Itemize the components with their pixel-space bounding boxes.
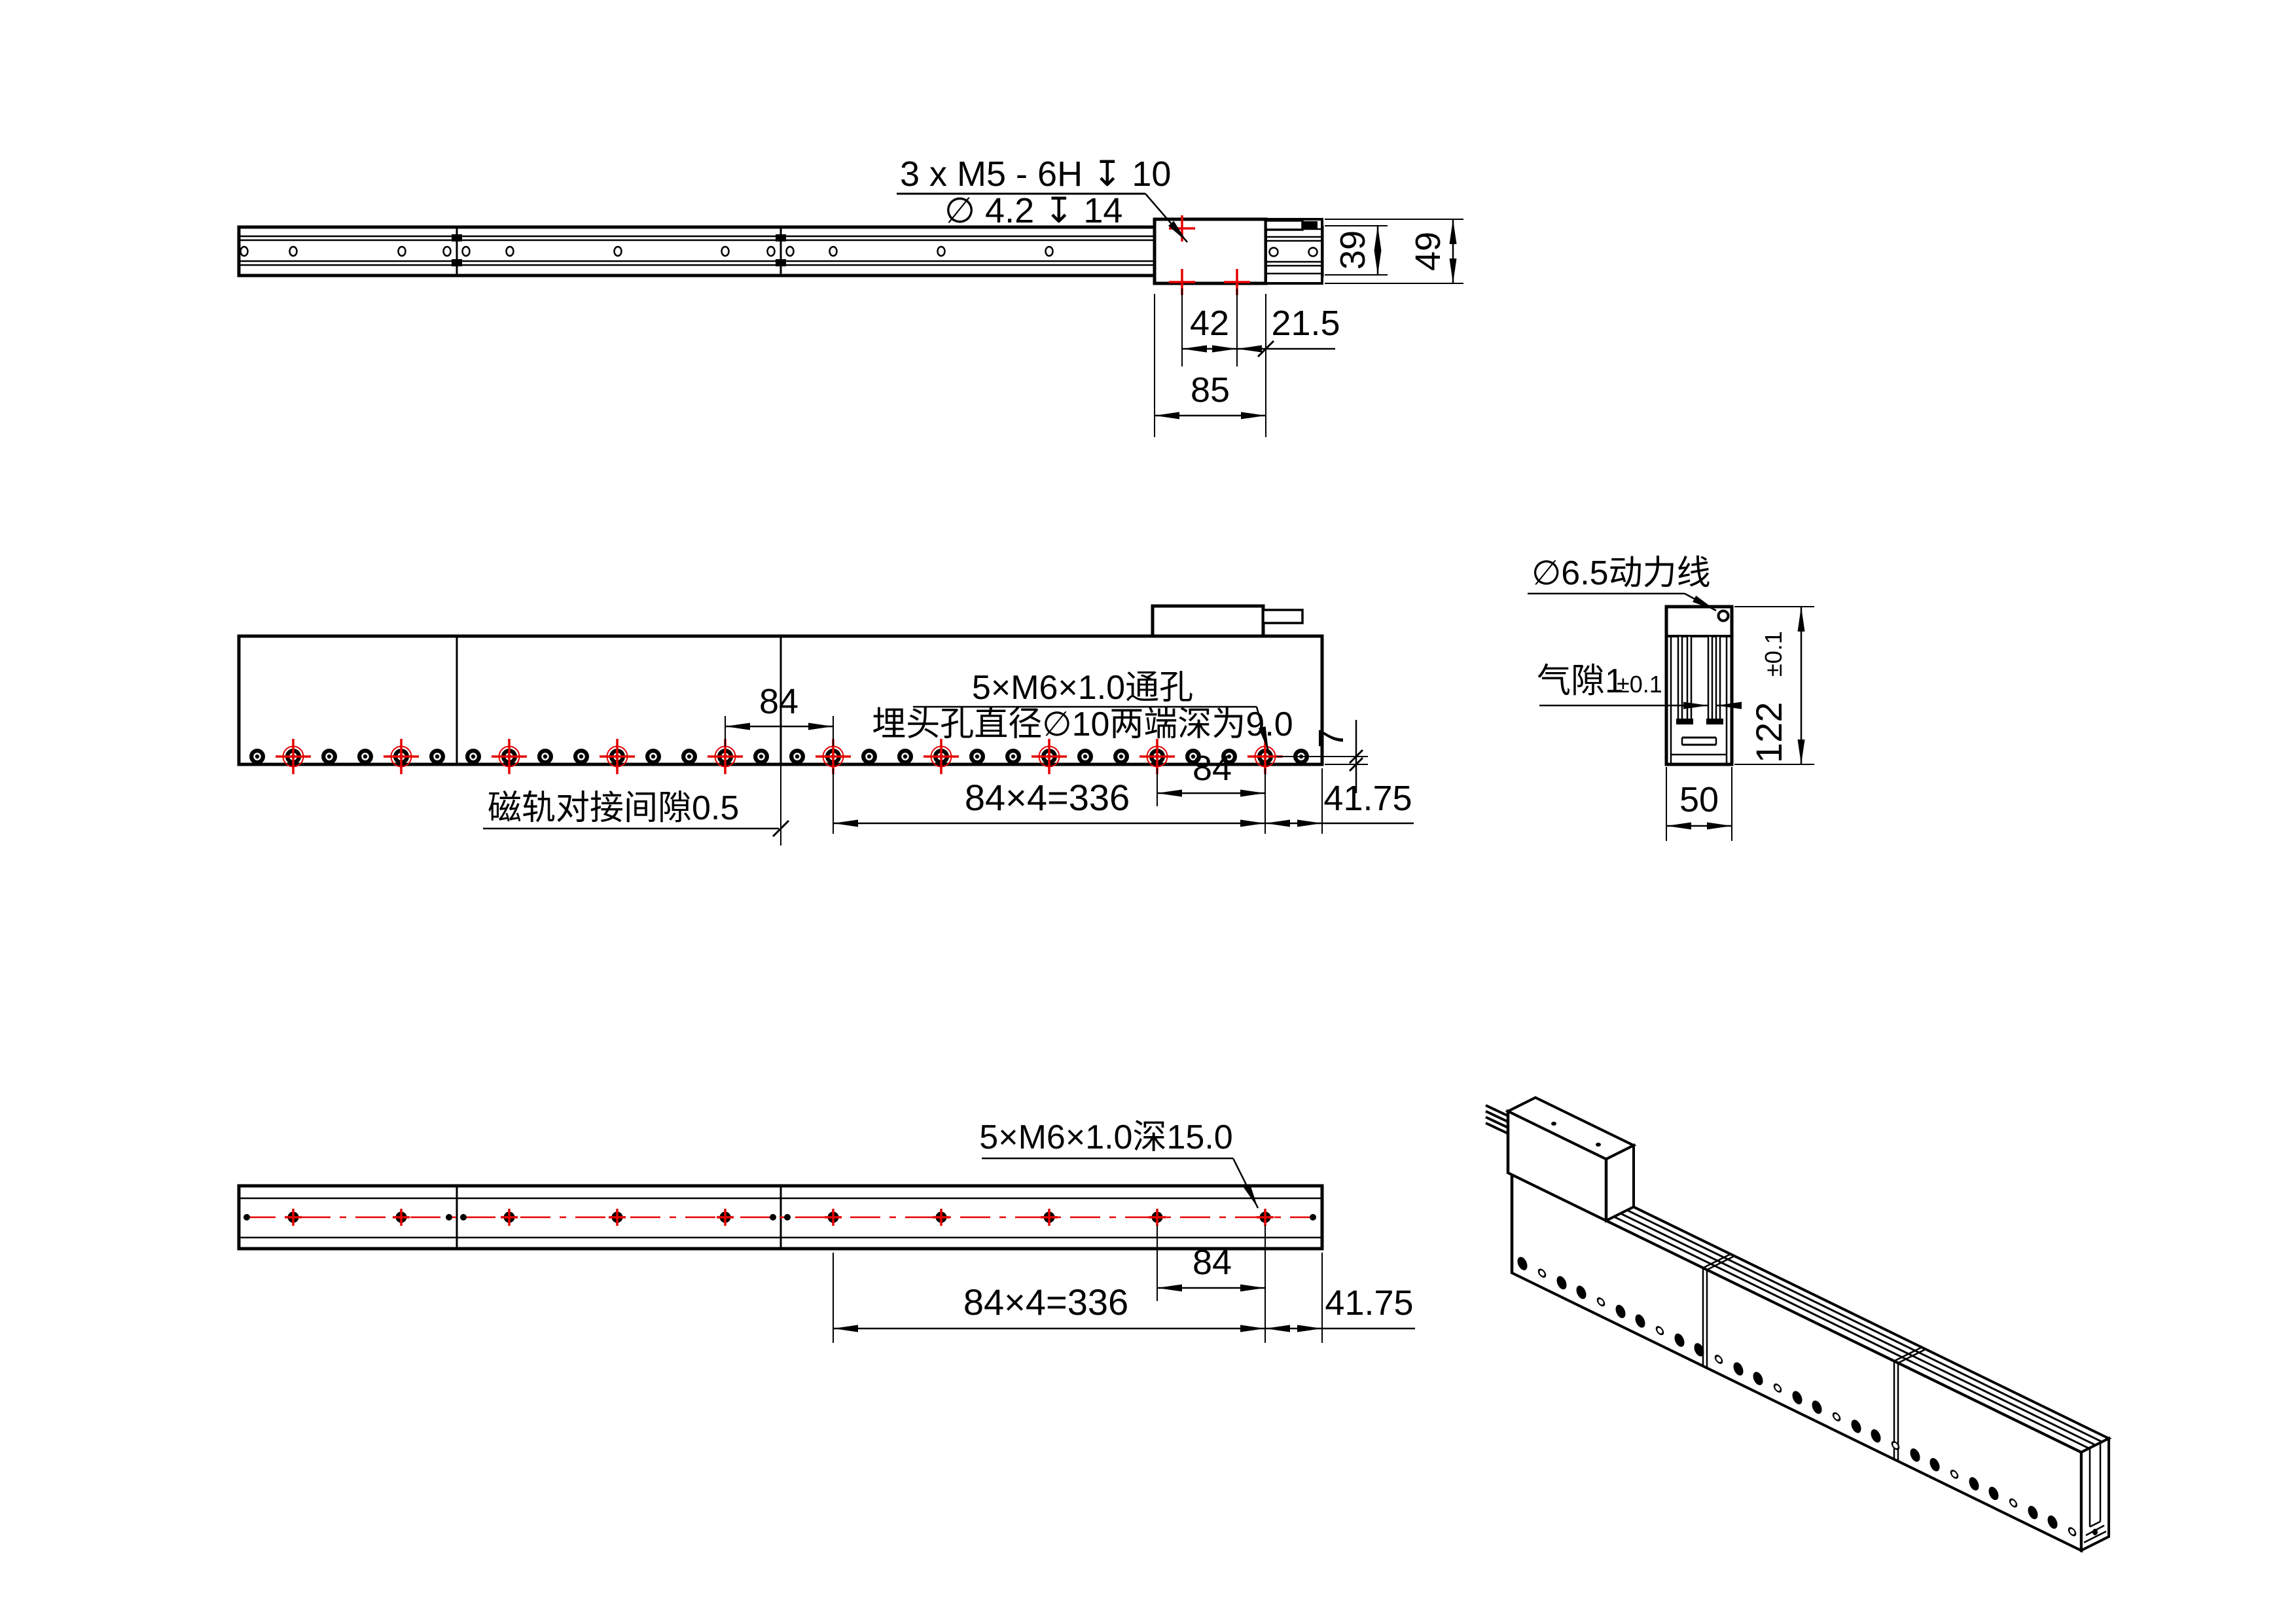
cable-outlet [1263,610,1302,623]
rail-hole [615,247,622,256]
end-hole [784,1214,791,1221]
dim-21-5: 21.5 [1271,304,1340,343]
cable-note: ∅6.5动力线 [1532,554,1711,592]
iso-front-face [1512,1175,2081,1550]
magnet-hole [861,749,877,764]
gap-note-text: 磁轨对接间隙0.5 [488,789,739,827]
top-callout-line1: 3 x M5 - 6H ↧ 10 [900,154,1171,194]
magnet-hole [429,749,445,764]
end-hole [1310,1214,1316,1221]
magnet-hole [1005,749,1021,764]
magnet-hole [897,749,913,764]
magnet-hole [573,749,589,764]
airgap-tol: ±0.1 [1617,671,1662,698]
magnet-hole [969,749,985,764]
dim-122-tol: ±0.1 [1760,631,1787,677]
magnet-hole [1113,749,1129,764]
sensor-tab [1266,221,1302,230]
end-hole [446,1214,452,1221]
rail-hole [241,247,248,256]
dim-total-bottom: 84×4=336 [963,1281,1128,1323]
section-outline [1666,607,1732,764]
end-hole [460,1214,467,1221]
rail-hole [787,247,794,256]
gap-note: 磁轨对接间隙0.5 [483,764,789,846]
rail-hole [507,247,514,256]
engineering-drawing: 3 x M5 - 6H ↧ 10 ∅ 4.2 ↧ 14 42 21.5 85 3… [0,0,2296,1623]
rail-hole [938,247,945,256]
rail-hole [768,247,775,256]
dim-50: 50 [1679,780,1719,819]
magnet-hole [753,749,769,764]
magnet-hole [465,749,481,764]
dim-total: 84×4=336 [965,777,1130,818]
iso-end-face [2081,1438,2109,1550]
dim-42: 42 [1190,304,1229,343]
dim-122: 122 [1748,702,1789,763]
magnet-hole [645,749,661,764]
rail-hole [722,247,729,256]
dim-85: 85 [1191,370,1230,410]
side-callout-line1: 5×M6×1.0通孔 [972,669,1193,707]
dim-end-bottom: 41.75 [1325,1283,1413,1323]
bottom-callout: 5×M6×1.0深15.0 [979,1118,1232,1156]
isometric-view [1486,1097,2109,1550]
side-view: 84 5×M6×1.0通孔 埋头孔直径∅10两端深为9.0 磁轨对接间隙0.5 [239,606,1414,846]
dim-39: 39 [1333,230,1372,270]
dim-7: 7 [1312,728,1351,748]
cable-hole [1719,611,1729,621]
dim-84-bottom: 84 [1193,1243,1232,1282]
dim-84: 84 [1193,749,1232,788]
stopper-hole [1270,248,1278,257]
end-hole [770,1214,776,1221]
top-callout-line2: ∅ 4.2 ↧ 14 [944,191,1122,230]
rail-hole [830,247,837,256]
side-callout-line2: 埋头孔直径∅10两端深为9.0 [872,705,1293,743]
bottom-view: 5×M6×1.0深15.0 84 84×4=336 41.75 [239,1118,1415,1343]
top-view: 3 x M5 - 6H ↧ 10 ∅ 4.2 ↧ 14 42 21.5 85 3… [239,154,1463,437]
dim-end: 41.75 [1323,779,1412,818]
rail-hole [1046,247,1053,256]
motor-connector-block [1153,606,1263,636]
end-hole [243,1214,250,1221]
magnet-hole [789,749,805,764]
rail-hole [444,247,451,256]
magnet-hole [321,749,337,764]
magnet-hole [1077,749,1093,764]
magnet-hole [681,749,697,764]
rail-hole [290,247,297,256]
magnet-hole [537,749,553,764]
dim-49: 49 [1408,232,1448,271]
airgap-note: 气隙1 [1537,662,1624,700]
end-stopper [1266,219,1322,283]
cross-section-view: ∅6.5动力线 气隙1 ±0.1 122 ±0.1 50 [1528,554,1814,841]
dim-84-top: 84 [759,682,798,721]
drawing-sheet: 3 x M5 - 6H ↧ 10 ∅ 4.2 ↧ 14 42 21.5 85 3… [0,0,2296,1623]
magnet-hole [249,749,265,764]
rail-hole [399,247,406,256]
stopper-hole [1309,248,1318,257]
magnet-hole [357,749,373,764]
rail-hole [463,247,470,256]
